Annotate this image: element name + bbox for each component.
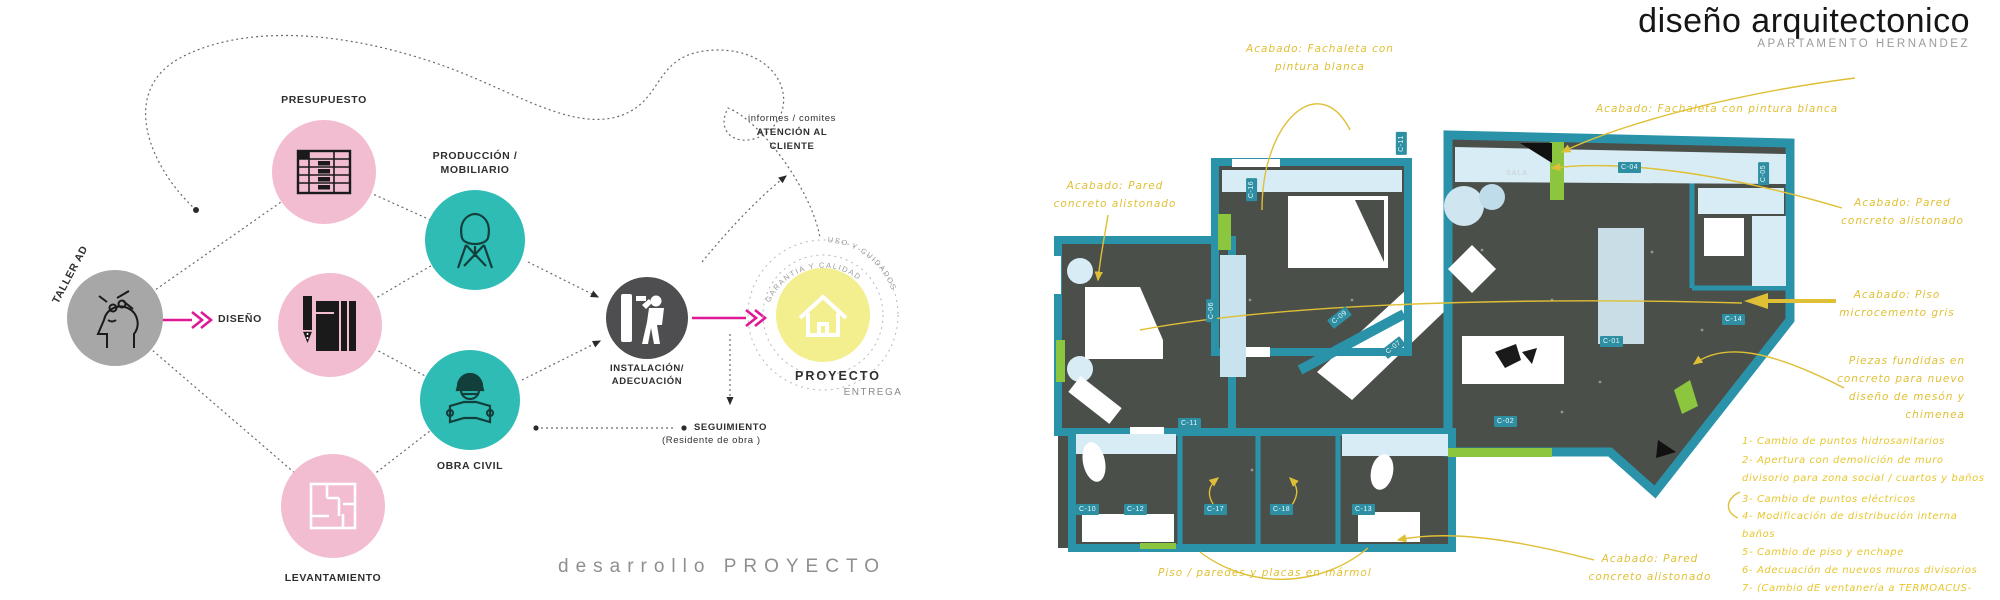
note-line-9: 7- (Cambio dE ventanería a TERMOACUS- — [1742, 583, 1972, 594]
annotation-line: Piezas fundidas en — [1830, 352, 1965, 370]
levantamiento-label: LEVANTAMIENTO — [268, 572, 398, 585]
proyecto-label: PROYECTO — [778, 370, 898, 383]
annotation-line: microcemento gris — [1822, 304, 1972, 322]
diagram-graphics: GARANTIA Y CALIDAD USO Y CUIDADOS — [0, 0, 2000, 600]
seguimiento-label: SEGUIMIENTO — [694, 421, 767, 434]
code-chip: C-04 — [1618, 162, 1641, 173]
annotation-pared-bottom: Acabado: Pared concreto alistonado — [1575, 550, 1725, 586]
annotation-piso: Acabado: Piso microcemento gris — [1822, 286, 1972, 322]
produccion-label-1: PRODUCCIÓN / — [415, 150, 535, 163]
note-line-5: 4- Modificación de distribución interna — [1742, 511, 1957, 522]
bath2-shower — [1342, 434, 1448, 456]
annotation-line: concreto alistonado — [1040, 195, 1190, 213]
annotation-line: pintura blanca — [1230, 58, 1410, 76]
plan-title: diseño arquitectonico — [1560, 2, 1970, 41]
annotation-fachaleta-right: Acabado: Fachaleta con pintura blanca — [1596, 100, 1838, 118]
annotation-line: Acabado: Pared — [1575, 550, 1725, 568]
annotation-line: Acabado: Pared — [1040, 177, 1190, 195]
annotation-piezas: Piezas fundidas en concreto para nuevo d… — [1830, 352, 1965, 424]
annotation-pared-right: Acabado: Pared concreto alistonado — [1830, 194, 1975, 230]
annotation-line: diseño de mesón y — [1830, 388, 1965, 406]
produccion-circle — [425, 190, 525, 290]
entrega-label: ENTREGA — [818, 386, 928, 399]
room-label-sala: SALA — [1506, 170, 1528, 177]
bedside-1 — [1067, 258, 1093, 284]
instalacion-label-2: ADECUACIÓN — [587, 375, 707, 388]
annotation-marmol: Piso / paredes y placas en mármol — [1158, 564, 1372, 582]
code-chip: C-17 — [1204, 504, 1227, 515]
note-line-8: 6- Adecuación de nuevos muros divisorios — [1742, 565, 1977, 576]
note-line-7: 5- Cambio de piso y enchape — [1742, 547, 1904, 558]
code-chip: C-14 — [1722, 314, 1745, 325]
levantamiento-circle — [281, 454, 385, 558]
presupuesto-label: PRESUPUESTO — [264, 94, 384, 107]
code-chip: C-18 — [1270, 504, 1293, 515]
connector-produccion-instalacion — [528, 262, 598, 297]
taller-circle — [67, 270, 163, 366]
note-line-1: 1- Cambio de puntos hidrosanitarios — [1742, 436, 1945, 447]
leader-list-bracket — [1728, 492, 1740, 518]
vanity-1 — [1082, 514, 1174, 542]
obra-label: OBRA CIVIL — [410, 460, 530, 473]
connector-atencion-cliente — [702, 176, 786, 262]
annotation-line: Acabado: Fachaleta con — [1230, 40, 1410, 58]
code-chip: C-16 — [1246, 178, 1257, 201]
atencion-line-1: informes / comites — [732, 112, 852, 125]
atencion-line-3: CLIENTE — [732, 140, 852, 153]
plant-small — [1479, 184, 1505, 210]
code-chip: C-11 — [1396, 132, 1407, 155]
kitchen-counter-right — [1752, 216, 1786, 286]
instalacion-label-1: INSTALACIÓN/ — [587, 362, 707, 375]
code-chip: C-02 — [1494, 416, 1517, 427]
instalacion-circle — [606, 277, 688, 359]
seguimiento-dot-left — [533, 425, 538, 430]
annotation-line: Acabado: Pared — [1830, 194, 1975, 212]
plan-subtitle: APARTAMENTO HERNANDEZ — [1560, 38, 1970, 50]
appliance — [1704, 218, 1744, 256]
kitchen-counter-top — [1698, 188, 1784, 214]
seguimiento-sub-label: (Residente de obra ) — [662, 434, 761, 447]
squiggle-dot — [193, 207, 199, 213]
arrow-taller-diseno-chevrons — [192, 312, 211, 328]
diseno-label: DISEÑO — [218, 313, 262, 326]
code-chip: C-01 — [1600, 336, 1623, 347]
code-chip: C-06 — [1206, 299, 1217, 322]
annotation-pared-left: Acabado: Pared concreto alistonado — [1040, 177, 1190, 213]
island-counter — [1598, 228, 1644, 344]
annotation-fachaleta-top: Acabado: Fachaleta con pintura blanca — [1230, 40, 1410, 76]
note-line-4: 3- Cambio de puntos eléctricos — [1742, 494, 1916, 505]
proyecto-circle — [776, 268, 870, 362]
poster-canvas: GARANTIA Y CALIDAD USO Y CUIDADOS — [0, 0, 2000, 600]
produccion-label-2: MOBILIARIO — [415, 164, 535, 177]
plant-large — [1444, 186, 1484, 226]
atencion-line-2: ATENCIÓN AL — [732, 126, 852, 139]
code-chip: C-13 — [1352, 504, 1375, 515]
code-chip: C-12 — [1124, 504, 1147, 515]
footer-title: desarrollo PROYECTO — [558, 556, 886, 578]
note-line-6: baños — [1742, 529, 1775, 540]
window-left — [1052, 256, 1061, 294]
code-chip: C-11 — [1178, 418, 1201, 429]
arrow-instalacion-proyecto-chevrons — [746, 310, 765, 326]
annotation-line: chimenea — [1830, 406, 1965, 424]
code-chip: C-10 — [1076, 504, 1099, 515]
annotation-line: concreto alistonado — [1575, 568, 1725, 586]
annotation-line: Acabado: Piso — [1822, 286, 1972, 304]
window-top — [1232, 159, 1280, 167]
seguimiento-dot-right — [681, 425, 686, 430]
code-chip: C-05 — [1758, 162, 1769, 185]
note-line-2: 2- Apertura con demolición de muro — [1742, 455, 1944, 466]
annotation-line: concreto alistonado — [1830, 212, 1975, 230]
annotation-line: concreto para nuevo — [1830, 370, 1965, 388]
lightwell — [1406, 135, 1448, 267]
note-line-3: divisorio para zona social / cuartos y b… — [1742, 473, 1985, 484]
